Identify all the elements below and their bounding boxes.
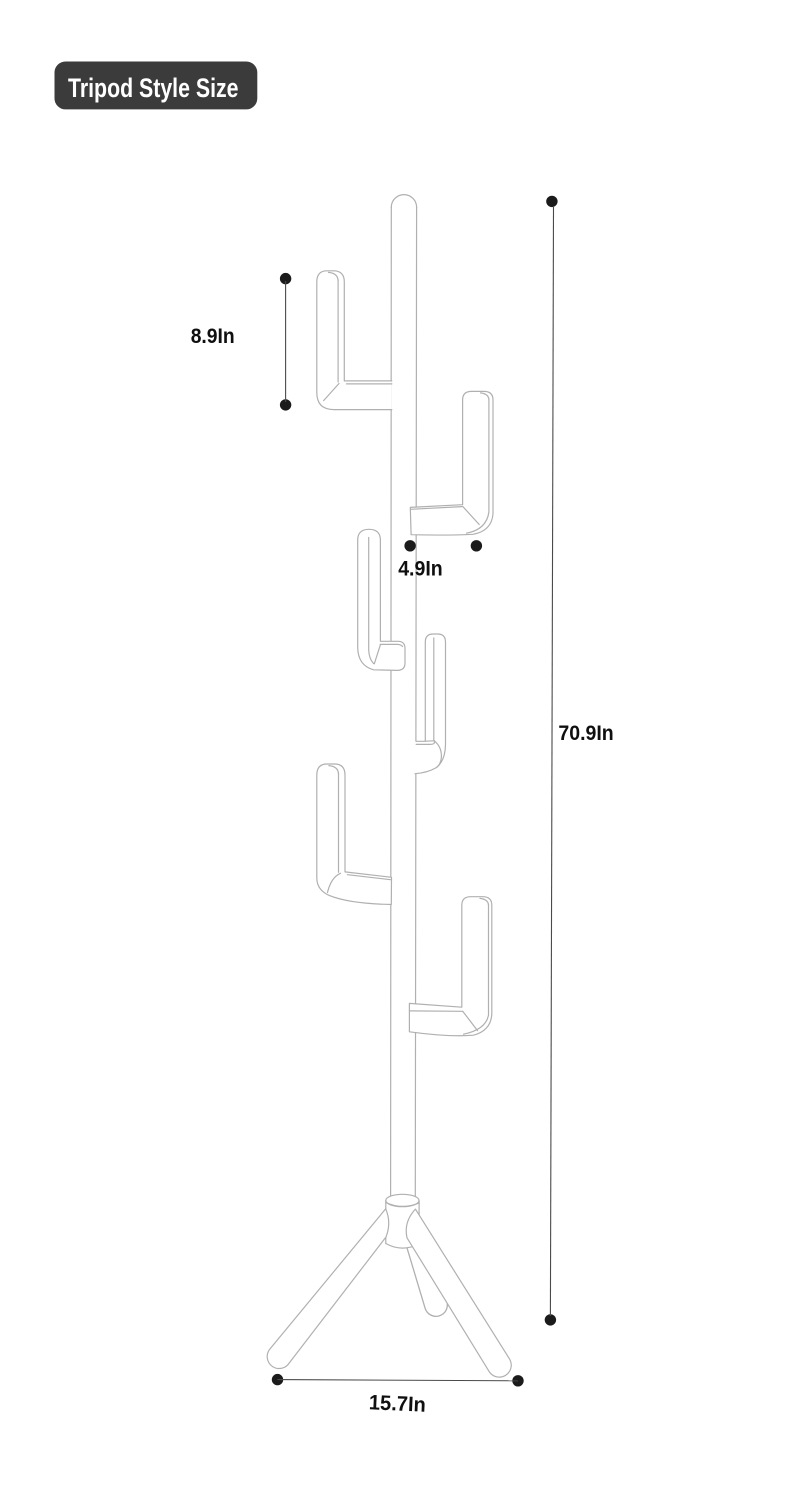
svg-text:Tripod Style Size: Tripod Style Size <box>68 73 239 103</box>
svg-text:70.9In: 70.9In <box>558 722 613 745</box>
svg-text:4.9In: 4.9In <box>398 558 443 581</box>
svg-text:15.7In: 15.7In <box>368 1391 426 1416</box>
svg-text:8.9In: 8.9In <box>191 325 235 348</box>
